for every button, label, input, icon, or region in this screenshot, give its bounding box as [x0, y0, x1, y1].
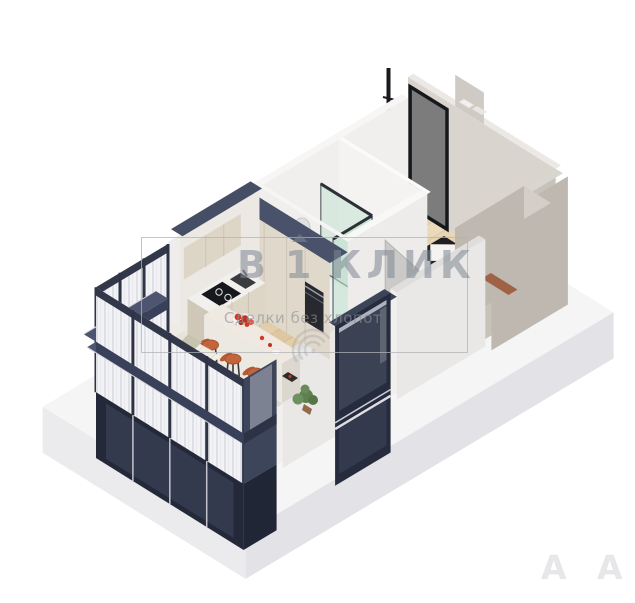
- stool-seat: [225, 354, 241, 364]
- strawberries: [245, 322, 250, 327]
- foliage: [301, 385, 310, 394]
- foliage: [293, 394, 304, 405]
- facade-corner-return: [244, 359, 277, 550]
- strawberries: [235, 314, 242, 321]
- strawberries: [238, 320, 243, 325]
- tomato: [260, 336, 264, 340]
- tray-item: [288, 375, 291, 378]
- floor-plan-screenshot: В 1 КЛИК Сделки без хлопот A A: [0, 0, 635, 603]
- foliage: [308, 395, 318, 405]
- tomato: [268, 343, 272, 347]
- glass-reflection: [380, 306, 387, 364]
- small-plate: [271, 349, 281, 355]
- isometric-floor-plan-render: [0, 0, 635, 603]
